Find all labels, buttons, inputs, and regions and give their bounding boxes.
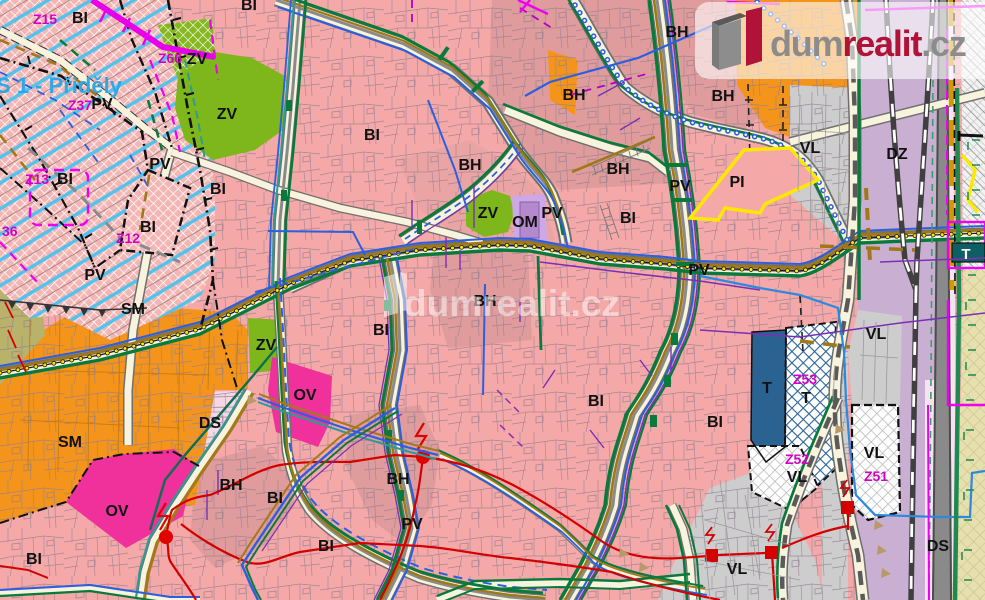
- svg-text:PV: PV: [541, 205, 563, 222]
- svg-text:BI: BI: [364, 127, 380, 144]
- svg-text:DS: DS: [199, 415, 222, 432]
- svg-text:dumrealit.cz: dumrealit.cz: [404, 283, 620, 324]
- svg-text:PI: PI: [729, 174, 744, 191]
- svg-text:OV: OV: [293, 387, 316, 404]
- svg-text:PV: PV: [669, 178, 691, 195]
- svg-text:T: T: [801, 390, 811, 407]
- svg-text:PV: PV: [688, 262, 710, 279]
- svg-text:BH: BH: [665, 24, 688, 41]
- svg-text:S 1 - Přiděly: S 1 - Přiděly: [0, 73, 123, 98]
- svg-text:VL: VL: [866, 326, 887, 343]
- svg-text:36: 36: [2, 223, 18, 239]
- svg-text:BI: BI: [241, 0, 257, 14]
- svg-text:BI: BI: [57, 171, 73, 188]
- svg-text:VL: VL: [800, 140, 821, 157]
- svg-text:ZV: ZV: [187, 51, 208, 68]
- svg-text:OV: OV: [105, 503, 128, 520]
- svg-text:ZV: ZV: [256, 337, 277, 354]
- svg-text:DZ: DZ: [886, 146, 908, 163]
- svg-text:BI: BI: [318, 538, 334, 555]
- svg-text:PV: PV: [401, 516, 423, 533]
- svg-text:BI: BI: [707, 414, 723, 431]
- svg-text:BI: BI: [210, 181, 226, 198]
- svg-text:T: T: [762, 380, 772, 397]
- svg-text:PV: PV: [149, 156, 171, 173]
- svg-text:BH: BH: [219, 477, 242, 494]
- svg-text:BI: BI: [140, 219, 156, 236]
- svg-text:Z13: Z13: [25, 171, 49, 187]
- svg-text:BH: BH: [562, 87, 585, 104]
- svg-text:ZV: ZV: [478, 205, 499, 222]
- svg-text:DS: DS: [927, 538, 950, 555]
- svg-text:PV: PV: [91, 96, 113, 113]
- svg-text:BI: BI: [267, 490, 283, 507]
- svg-text:BI: BI: [26, 551, 42, 568]
- svg-text:BH: BH: [711, 88, 734, 105]
- svg-text:T: T: [961, 246, 970, 263]
- svg-text:BI: BI: [620, 210, 636, 227]
- svg-text:Z37: Z37: [68, 97, 92, 113]
- svg-text:BI: BI: [588, 393, 604, 410]
- svg-text:Z53: Z53: [793, 371, 817, 387]
- svg-text:OM: OM: [512, 214, 538, 231]
- svg-text:dumrealit.cz: dumrealit.cz: [770, 23, 966, 64]
- svg-text:SM: SM: [58, 434, 82, 451]
- svg-text:BH: BH: [458, 157, 481, 174]
- svg-text:Z15: Z15: [33, 11, 57, 27]
- svg-text:BH: BH: [606, 161, 629, 178]
- svg-text:Z52: Z52: [785, 451, 809, 467]
- svg-text:Z51: Z51: [864, 468, 888, 484]
- svg-text:BH: BH: [386, 471, 409, 488]
- svg-text:Z66: Z66: [158, 50, 182, 66]
- svg-text:VL: VL: [727, 561, 748, 578]
- svg-text:BI: BI: [373, 322, 389, 339]
- svg-text:SM: SM: [121, 301, 145, 318]
- svg-text:ZV: ZV: [217, 106, 238, 123]
- svg-text:VL: VL: [864, 445, 885, 462]
- svg-text:BI: BI: [72, 10, 88, 27]
- svg-text:Z12: Z12: [116, 230, 140, 246]
- svg-text:VL: VL: [787, 469, 808, 486]
- svg-text:PV: PV: [84, 267, 106, 284]
